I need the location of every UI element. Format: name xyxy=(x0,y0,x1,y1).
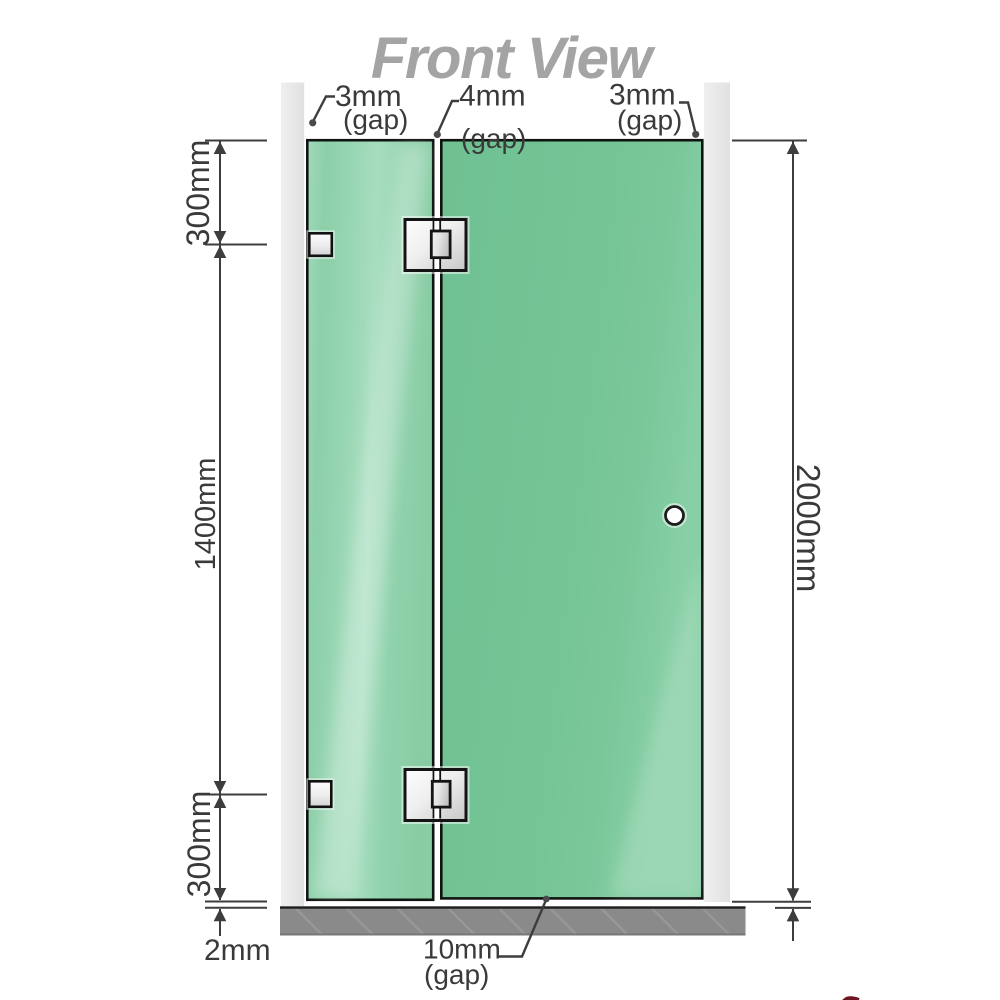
svg-text:(gap): (gap) xyxy=(461,123,526,154)
svg-text:4mm: 4mm xyxy=(459,80,526,113)
svg-text:(gap): (gap) xyxy=(343,104,408,135)
svg-text:2000mm: 2000mm xyxy=(790,464,827,592)
svg-text:300mm: 300mm xyxy=(181,791,217,898)
svg-text:1400mm: 1400mm xyxy=(190,458,222,571)
svg-text:2mm: 2mm xyxy=(204,934,271,967)
svg-text:(gap): (gap) xyxy=(424,959,489,990)
svg-text:(gap): (gap) xyxy=(617,105,682,136)
svg-text:300mm: 300mm xyxy=(180,140,216,247)
